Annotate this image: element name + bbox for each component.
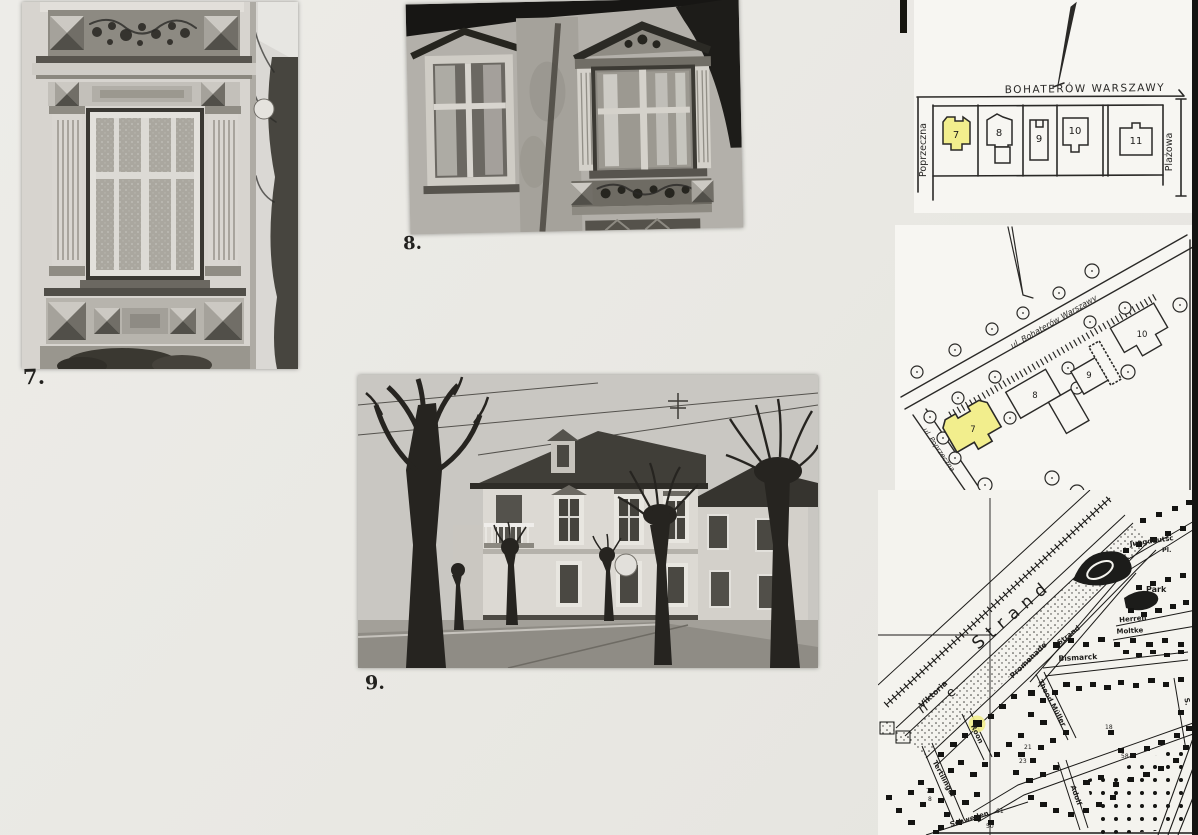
lamp-globe bbox=[254, 99, 274, 119]
svg-text:8: 8 bbox=[996, 128, 1002, 139]
pilaster-left bbox=[49, 106, 85, 276]
photo-window-detail-7 bbox=[22, 2, 298, 369]
svg-text:7: 7 bbox=[926, 788, 930, 795]
svg-text:21: 21 bbox=[1024, 744, 1032, 751]
street-edge-s: S. bbox=[1182, 697, 1191, 706]
svg-text:9: 9 bbox=[1086, 371, 1091, 381]
photo-facade-windows-8 bbox=[406, 0, 744, 234]
sketch-map-plots: BOHATERÓW WARSZAWY Poprzeczna Plażowa 7 … bbox=[900, 0, 1198, 215]
svg-text:23: 23 bbox=[1019, 758, 1027, 765]
photo-villa-street-9 bbox=[358, 375, 818, 668]
street-name-top: BOHATERÓW WARSZAWY bbox=[1005, 81, 1166, 96]
svg-text:58: 58 bbox=[1121, 753, 1129, 760]
svg-text:11: 11 bbox=[1130, 136, 1143, 147]
svg-text:7: 7 bbox=[970, 425, 975, 435]
svg-text:50: 50 bbox=[986, 823, 994, 830]
right-window bbox=[574, 24, 713, 179]
floral-relief-band bbox=[570, 178, 714, 231]
cornice bbox=[32, 56, 256, 79]
street-moltke: Moltke bbox=[1116, 626, 1143, 635]
satellite-dish bbox=[615, 554, 637, 576]
svg-text:10: 10 bbox=[1137, 330, 1148, 340]
svg-text:61: 61 bbox=[996, 808, 1004, 815]
scan-edge-strip bbox=[1192, 0, 1198, 835]
site-plan-map: ul. Bohaterów Warszawy ul. Poprzeczna bbox=[895, 225, 1198, 500]
historic-city-map: Strand n e Viktoria Promenade Bismarck S… bbox=[878, 490, 1198, 835]
floral-frieze bbox=[48, 10, 240, 56]
photo-9-label: 9. bbox=[365, 672, 386, 695]
svg-text:9: 9 bbox=[1036, 134, 1042, 145]
upper-panel bbox=[48, 82, 240, 106]
svg-text:8: 8 bbox=[928, 796, 932, 803]
scanned-document-page: 7. bbox=[0, 0, 1198, 835]
photo-7-label: 7. bbox=[23, 364, 46, 390]
window bbox=[86, 108, 204, 280]
svg-text:7: 7 bbox=[953, 130, 959, 141]
sill-and-lower-panel bbox=[44, 280, 246, 344]
street-name-right: Plażowa bbox=[1164, 133, 1175, 172]
svg-text:10: 10 bbox=[1069, 126, 1082, 137]
photo-8-label: 8. bbox=[403, 233, 423, 255]
street-name-left: Poprzeczna bbox=[918, 123, 929, 177]
svg-text:8: 8 bbox=[1032, 391, 1037, 401]
area-park: Park bbox=[1146, 585, 1167, 594]
area-platz: Pl. bbox=[1162, 546, 1171, 554]
plinth bbox=[40, 346, 250, 369]
svg-text:18: 18 bbox=[1105, 724, 1113, 731]
pilaster-right bbox=[205, 106, 241, 276]
